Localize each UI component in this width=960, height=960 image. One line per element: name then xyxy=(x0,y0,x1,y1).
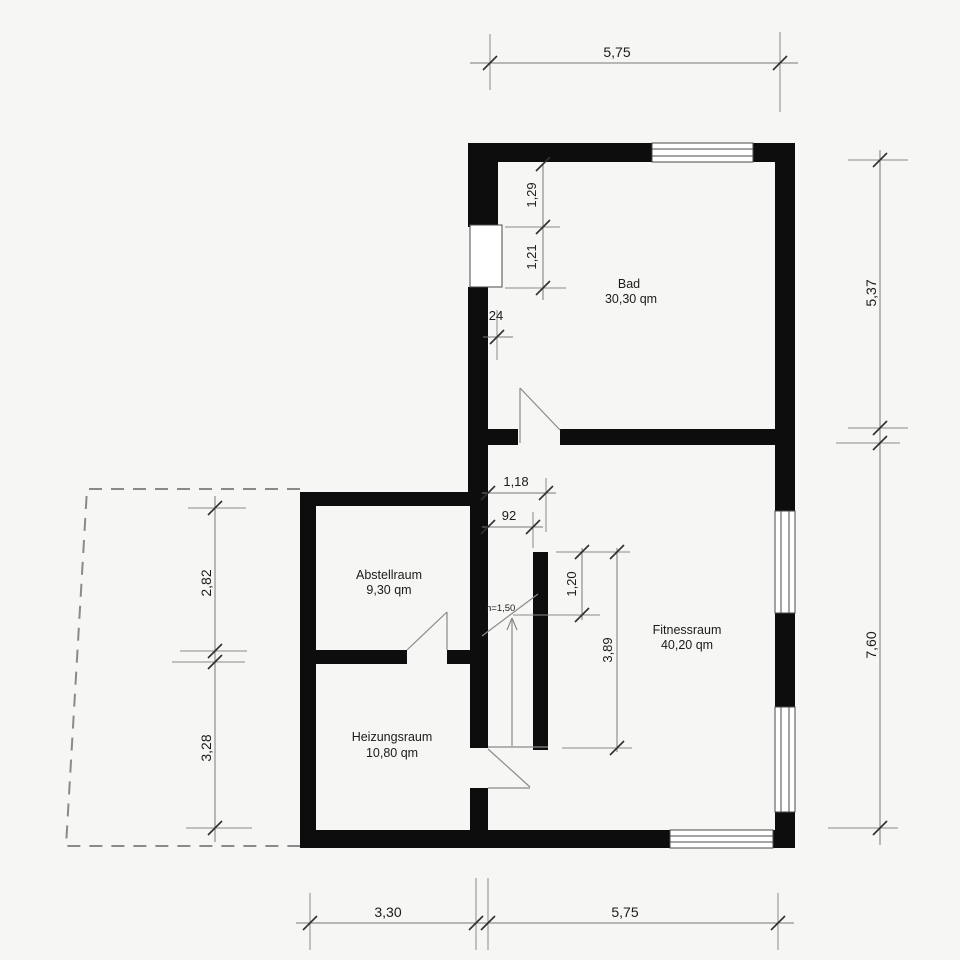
dim-label-92: 92 xyxy=(502,508,516,523)
dim-label-bottom-left: 3,30 xyxy=(374,904,401,920)
room-label-bad: Bad xyxy=(618,277,640,291)
dim-label-389: 3,89 xyxy=(600,637,615,662)
room-label-abstellraum: Abstellraum xyxy=(356,568,422,582)
window-top xyxy=(652,143,753,162)
room-area-bad: 30,30 qm xyxy=(605,292,657,306)
wall-right-middle xyxy=(775,613,795,707)
wall-bad-fitness-right xyxy=(560,429,775,445)
room-area-heizungsraum: 10,80 qm xyxy=(366,746,418,760)
window-bottom xyxy=(670,830,773,848)
niche-left-wall xyxy=(470,225,502,287)
floor-plan-drawing: 5,75 5,37 7,60 2,82 3,28 3,30 5,75 1,29 … xyxy=(0,0,960,960)
dim-label-right-upper: 5,37 xyxy=(863,279,879,306)
wall-left-upper-pier xyxy=(468,143,498,227)
wall-abstell-heiz-right xyxy=(447,650,488,664)
room-label-heizungsraum: Heizungsraum xyxy=(352,730,433,744)
dim-label-118: 1,18 xyxy=(503,474,528,489)
wall-annex-left xyxy=(300,492,316,848)
floor-plan-canvas: 5,75 5,37 7,60 2,82 3,28 3,30 5,75 1,29 … xyxy=(0,0,960,960)
dim-label-129: 1,29 xyxy=(524,182,539,207)
dim-label-right-lower: 7,60 xyxy=(863,631,879,658)
room-area-abstellraum: 9,30 qm xyxy=(366,583,411,597)
window-right-upper xyxy=(775,511,795,613)
height-line-label: h=1,50 xyxy=(486,603,515,614)
wall-bottom-right xyxy=(773,830,795,848)
dim-label-left-lower: 3,28 xyxy=(198,734,214,761)
dim-label-120: 1,20 xyxy=(564,571,579,596)
wall-bottom-main xyxy=(300,830,670,848)
room-label-fitnessraum: Fitnessraum xyxy=(653,623,722,637)
wall-annex-top xyxy=(300,492,488,506)
wall-right-upper xyxy=(775,143,795,511)
wall-corridor-lower xyxy=(470,788,488,830)
wall-abstell-heiz-left xyxy=(300,650,407,664)
dim-label-left-upper: 2,82 xyxy=(198,569,214,596)
dim-label-top: 5,75 xyxy=(603,44,630,60)
wall-stair-partition xyxy=(533,552,548,750)
dim-label-bottom-right: 5,75 xyxy=(611,904,638,920)
room-area-fitnessraum: 40,20 qm xyxy=(661,638,713,652)
wall-left-upper xyxy=(468,287,488,506)
dim-label-121: 1,21 xyxy=(524,244,539,269)
wall-corridor-upper xyxy=(470,506,488,748)
window-right-lower xyxy=(775,707,795,812)
dim-label-24: 24 xyxy=(489,308,503,323)
wall-bad-fitness-left xyxy=(488,429,518,445)
